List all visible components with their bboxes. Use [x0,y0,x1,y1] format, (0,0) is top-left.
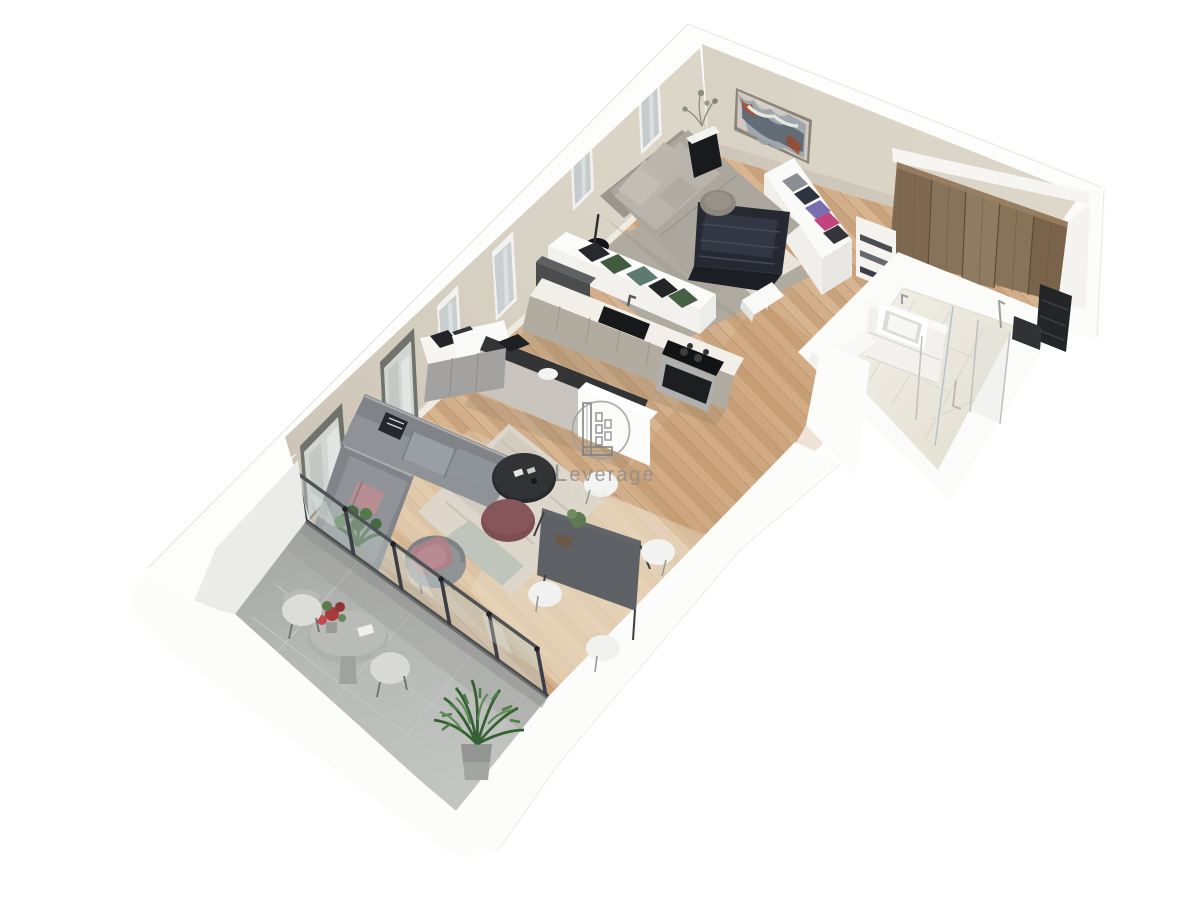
svg-text:P r o p e r t i e s: P r o p e r t i e s [573,487,652,501]
svg-text:Leverage: Leverage [554,460,656,487]
